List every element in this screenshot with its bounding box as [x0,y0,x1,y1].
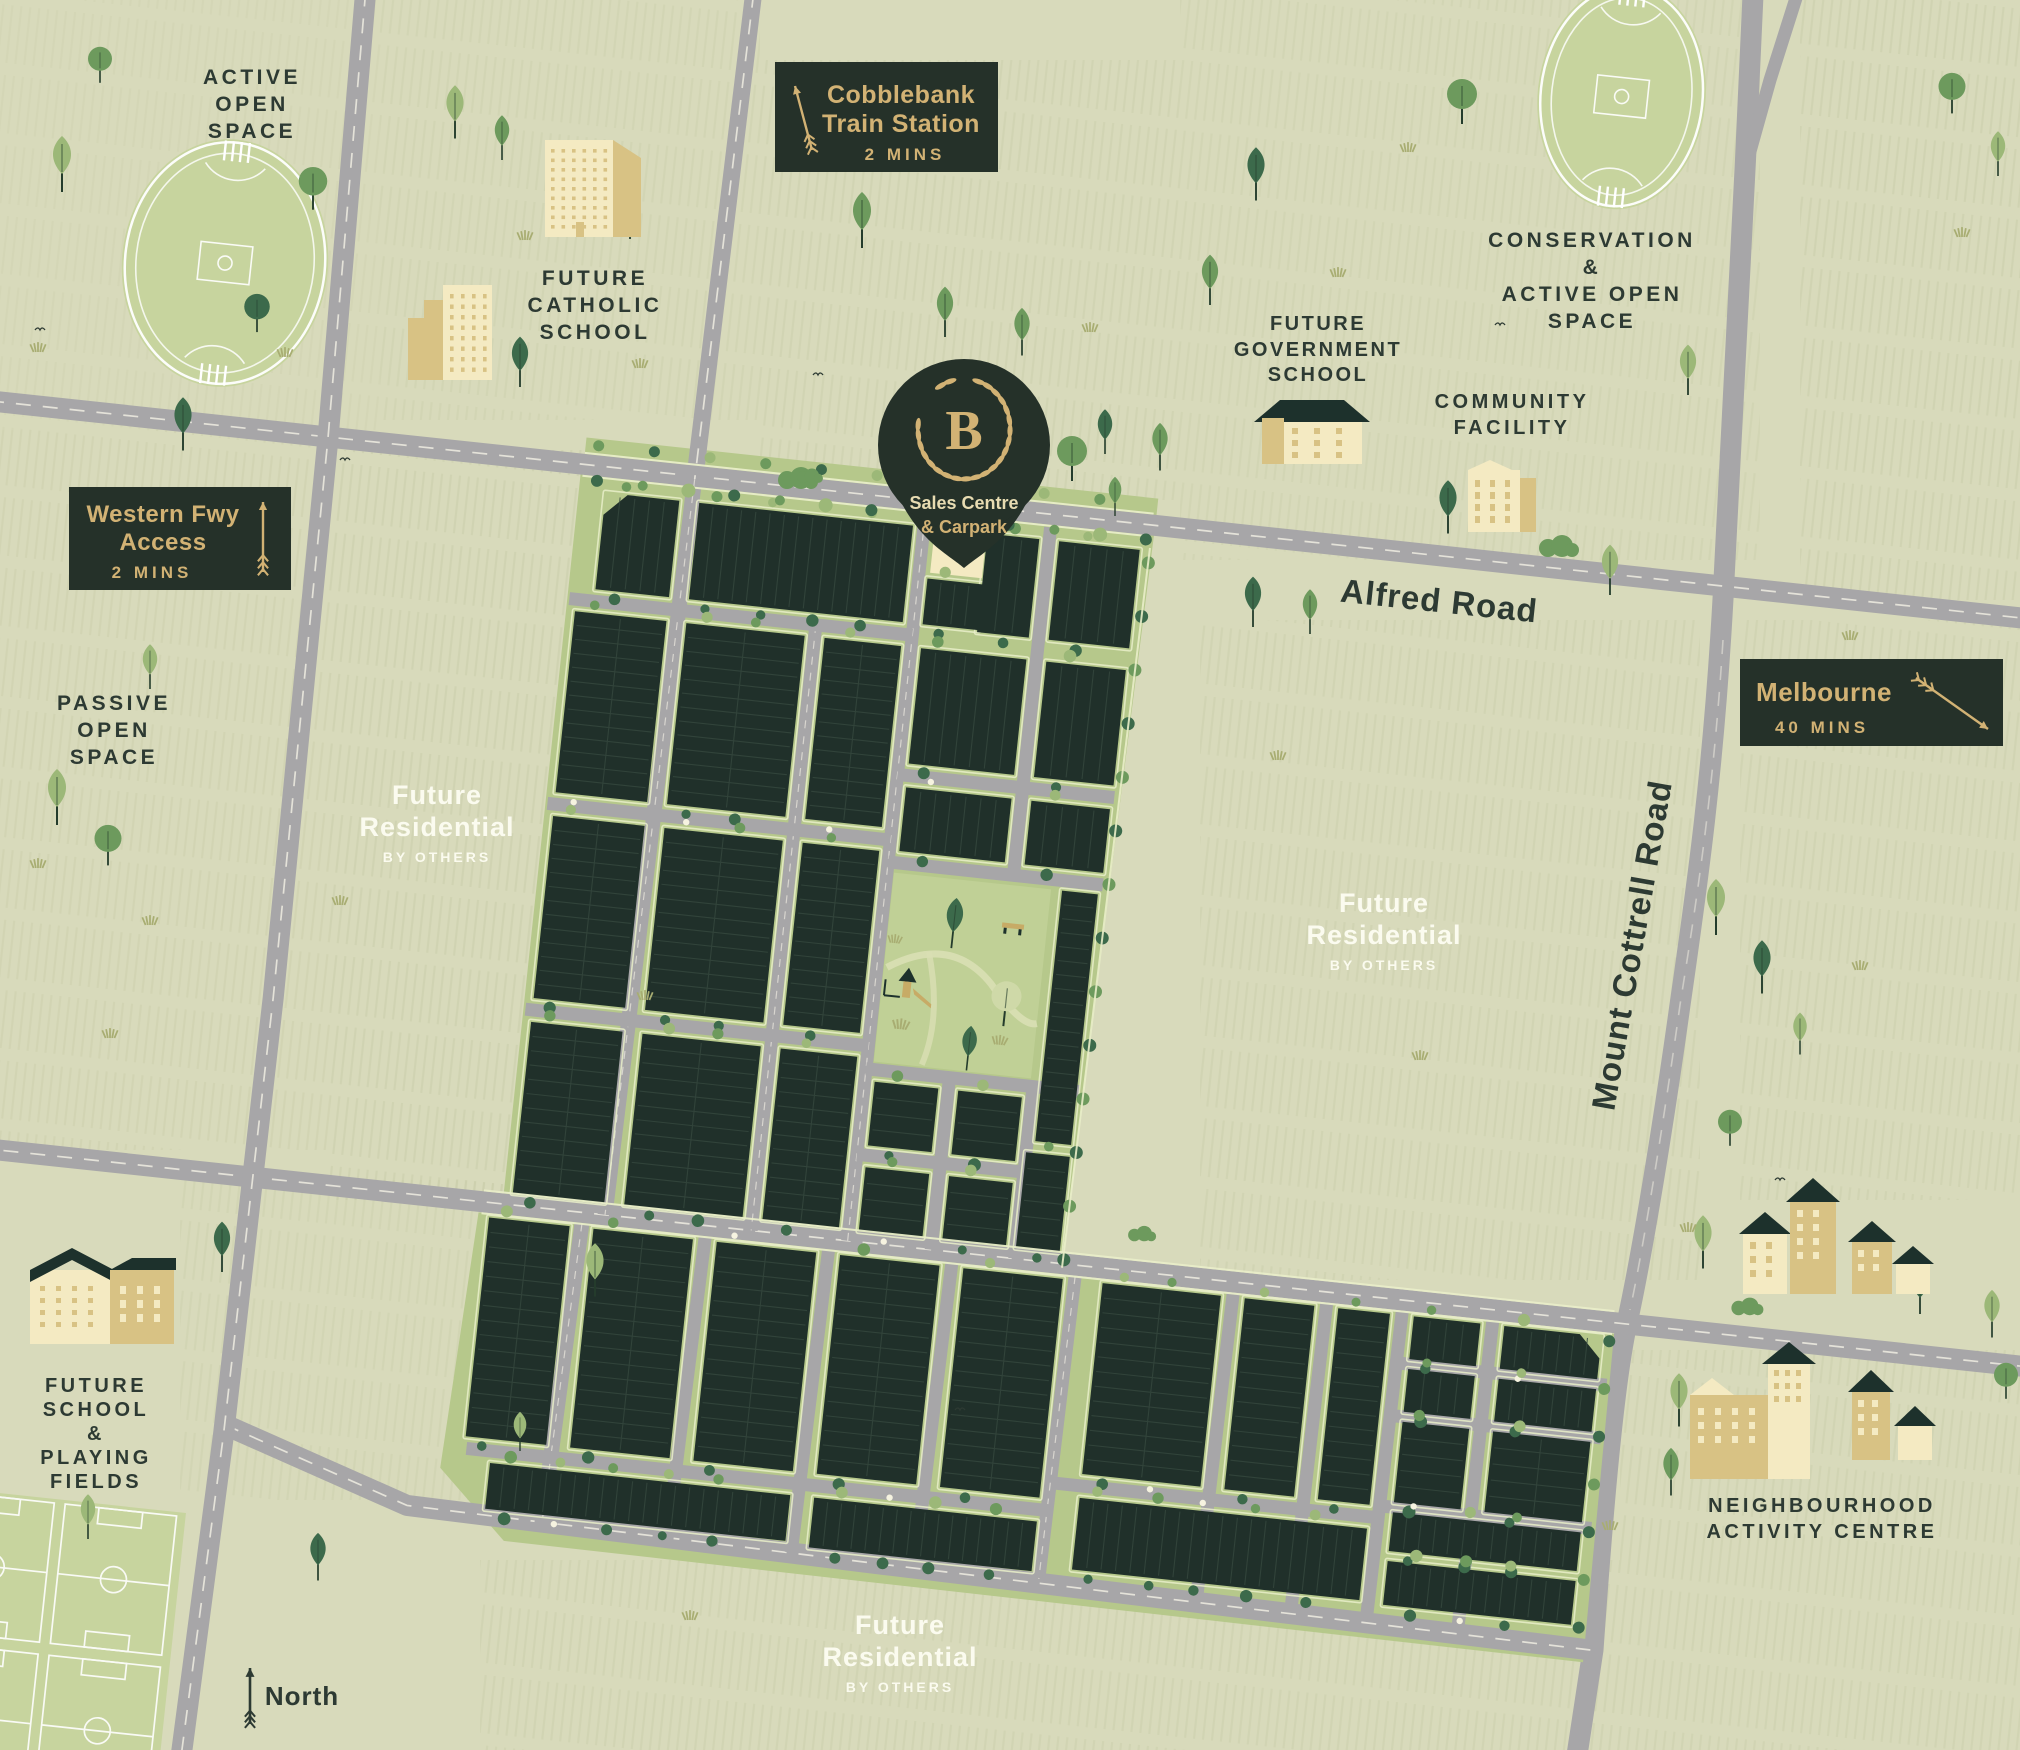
svg-text:Residential: Residential [1306,920,1461,950]
svg-text:SCHOOL: SCHOOL [43,1399,150,1421]
svg-text:FUTURE: FUTURE [1270,313,1366,335]
svg-text:Train Station: Train Station [822,110,980,138]
svg-text:FACILITY: FACILITY [1454,417,1571,439]
svg-text:FUTURE: FUTURE [45,1375,147,1397]
svg-text:PASSIVE: PASSIVE [57,692,171,715]
svg-text:BY OTHERS: BY OTHERS [383,849,491,865]
svg-text:North: North [265,1681,339,1711]
svg-text:SPACE: SPACE [1548,310,1636,333]
svg-text:SPACE: SPACE [208,120,296,143]
svg-text:&: & [1583,256,1602,279]
svg-text:COMMUNITY: COMMUNITY [1435,391,1590,413]
svg-text:2 MINS: 2 MINS [865,145,946,164]
svg-text:ACTIVE: ACTIVE [203,66,301,89]
svg-text:CATHOLIC: CATHOLIC [528,294,663,317]
svg-text:ACTIVE OPEN: ACTIVE OPEN [1502,283,1683,306]
svg-text:B: B [945,400,982,462]
svg-text:GOVERNMENT: GOVERNMENT [1234,339,1402,361]
svg-text:Melbourne: Melbourne [1756,677,1892,707]
svg-text:SCHOOL: SCHOOL [540,321,651,344]
svg-text:FIELDS: FIELDS [50,1471,142,1493]
svg-text:NEIGHBOURHOOD: NEIGHBOURHOOD [1708,1495,1936,1517]
svg-text:SPACE: SPACE [70,746,158,769]
svg-text:Access: Access [119,529,206,556]
svg-text:FUTURE: FUTURE [542,267,648,290]
svg-text:OPEN: OPEN [215,93,289,116]
svg-text:Future: Future [855,1610,945,1640]
svg-text:Future: Future [1339,888,1429,918]
svg-text:40 MINS: 40 MINS [1775,718,1869,737]
svg-text:OPEN: OPEN [77,719,151,742]
svg-text:BY OTHERS: BY OTHERS [846,1679,954,1695]
svg-text:CONSERVATION: CONSERVATION [1488,229,1696,252]
svg-text:SCHOOL: SCHOOL [1268,364,1369,386]
svg-text:ACTIVITY CENTRE: ACTIVITY CENTRE [1706,1521,1937,1543]
svg-text:&: & [87,1423,105,1445]
svg-text:2 MINS: 2 MINS [112,563,193,582]
svg-text:PLAYING: PLAYING [40,1447,152,1469]
svg-text:BY OTHERS: BY OTHERS [1330,957,1438,973]
svg-text:Future: Future [392,780,482,810]
svg-text:Cobblebank: Cobblebank [827,81,975,109]
svg-text:& Carpark: & Carpark [921,517,1008,537]
svg-text:Sales Centre: Sales Centre [909,493,1018,513]
svg-text:Western Fwy: Western Fwy [86,501,239,528]
svg-text:Residential: Residential [822,1642,977,1672]
svg-text:Residential: Residential [359,812,514,842]
